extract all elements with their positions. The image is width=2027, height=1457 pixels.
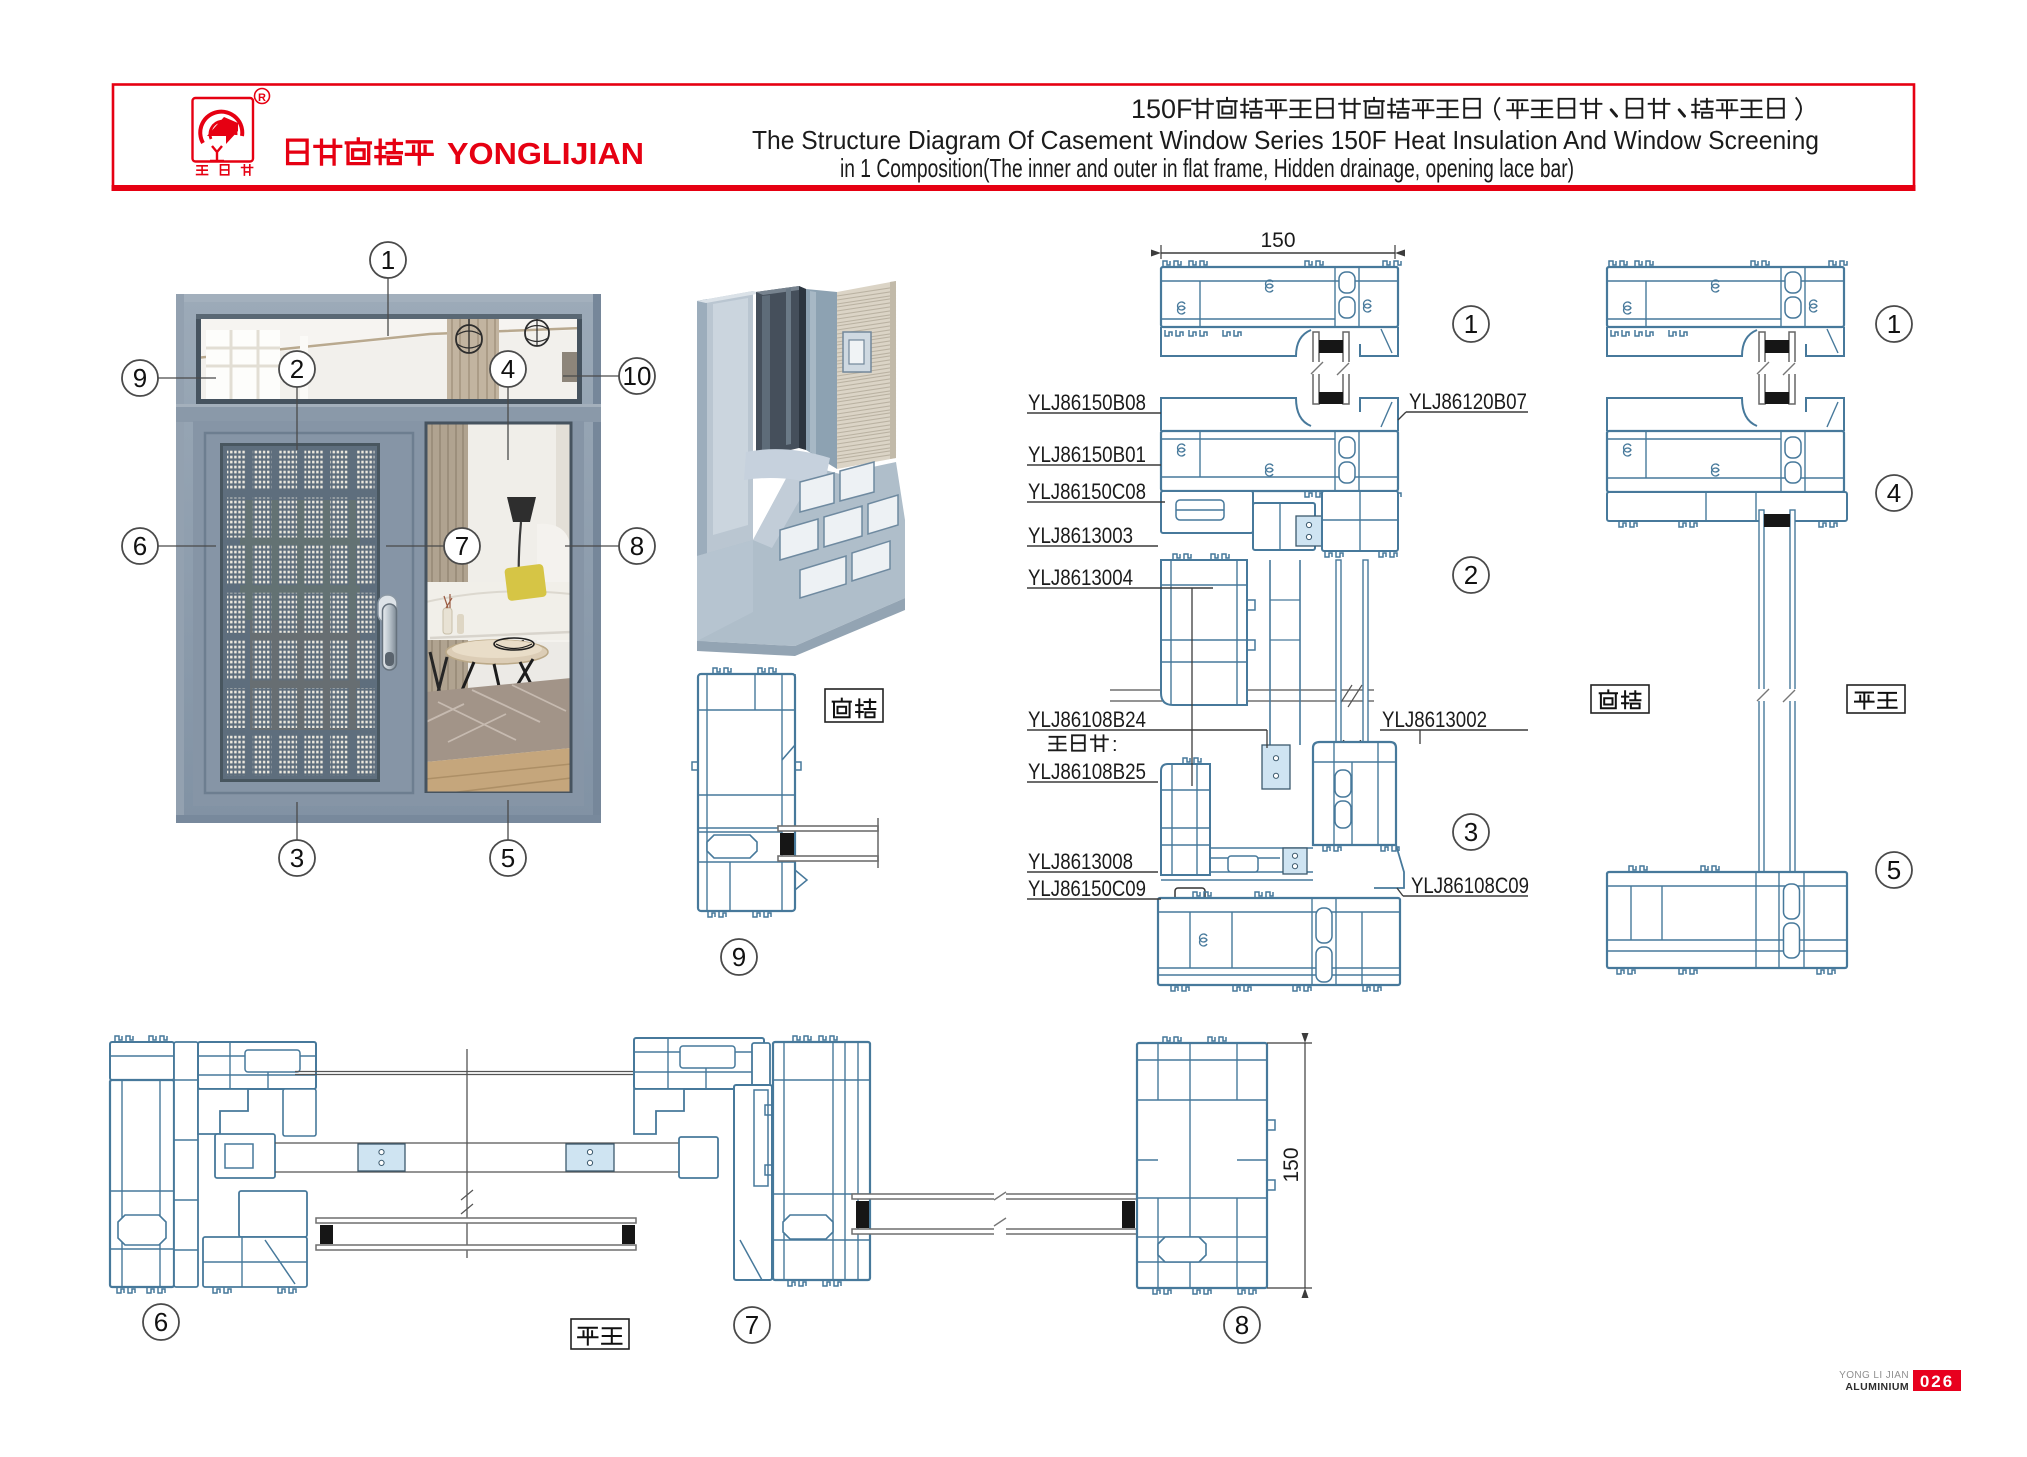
svg-text:8: 8 <box>1235 1310 1249 1340</box>
svg-text:YLJ86150C08: YLJ86150C08 <box>1028 479 1146 504</box>
svg-text:150: 150 <box>1280 1147 1303 1182</box>
svg-text:6: 6 <box>133 531 147 561</box>
svg-text:YLJ8613002: YLJ8613002 <box>1382 707 1487 732</box>
svg-text:YLJ86150B08: YLJ86150B08 <box>1028 390 1146 415</box>
svg-text:YLJ86108B24: YLJ86108B24 <box>1028 707 1146 732</box>
svg-text:7: 7 <box>745 1310 759 1340</box>
svg-text:150: 150 <box>1260 229 1295 252</box>
svg-text:4: 4 <box>501 354 515 384</box>
svg-text:2: 2 <box>290 354 304 384</box>
svg-text:5: 5 <box>1887 855 1901 885</box>
svg-text:The Structure Diagram Of Casem: The Structure Diagram Of Casement Window… <box>752 125 1819 155</box>
svg-text:10: 10 <box>623 361 652 391</box>
svg-text:YLJ8613004: YLJ8613004 <box>1028 565 1133 590</box>
svg-text:YONG LI JIAN: YONG LI JIAN <box>1839 1370 1909 1381</box>
svg-text::: : <box>1112 734 1118 756</box>
svg-text:1: 1 <box>381 245 395 275</box>
svg-text:YLJ86120B07: YLJ86120B07 <box>1409 389 1527 414</box>
svg-text:6: 6 <box>154 1307 168 1337</box>
svg-text:3: 3 <box>290 843 304 873</box>
svg-text:YLJ8613003: YLJ8613003 <box>1028 523 1133 548</box>
svg-text:1: 1 <box>1887 309 1901 339</box>
svg-text:4: 4 <box>1887 478 1901 508</box>
svg-text:YLJ86150B01: YLJ86150B01 <box>1028 442 1146 467</box>
svg-text:R: R <box>258 92 266 104</box>
svg-text:YLJ86108C09: YLJ86108C09 <box>1411 873 1529 898</box>
svg-text:YLJ86150C09: YLJ86150C09 <box>1028 876 1146 901</box>
svg-text:3: 3 <box>1464 817 1478 847</box>
svg-text:150F: 150F <box>1131 94 1193 124</box>
svg-text:2: 2 <box>1464 560 1478 590</box>
svg-text:5: 5 <box>501 843 515 873</box>
svg-text:YONGLIJIAN: YONGLIJIAN <box>447 136 644 171</box>
svg-text:YLJ86108B25: YLJ86108B25 <box>1028 759 1146 784</box>
svg-text:9: 9 <box>133 363 147 393</box>
svg-text:026: 026 <box>1920 1372 1954 1391</box>
svg-text:1: 1 <box>1464 309 1478 339</box>
svg-text:YLJ8613008: YLJ8613008 <box>1028 849 1133 874</box>
svg-text:ALUMINIUM: ALUMINIUM <box>1845 1381 1909 1393</box>
svg-text:7: 7 <box>455 531 469 561</box>
svg-text:in 1 Composition(The inner and: in 1 Composition(The inner and outer in … <box>840 153 1574 183</box>
svg-text:9: 9 <box>732 942 746 972</box>
svg-text:8: 8 <box>630 531 644 561</box>
